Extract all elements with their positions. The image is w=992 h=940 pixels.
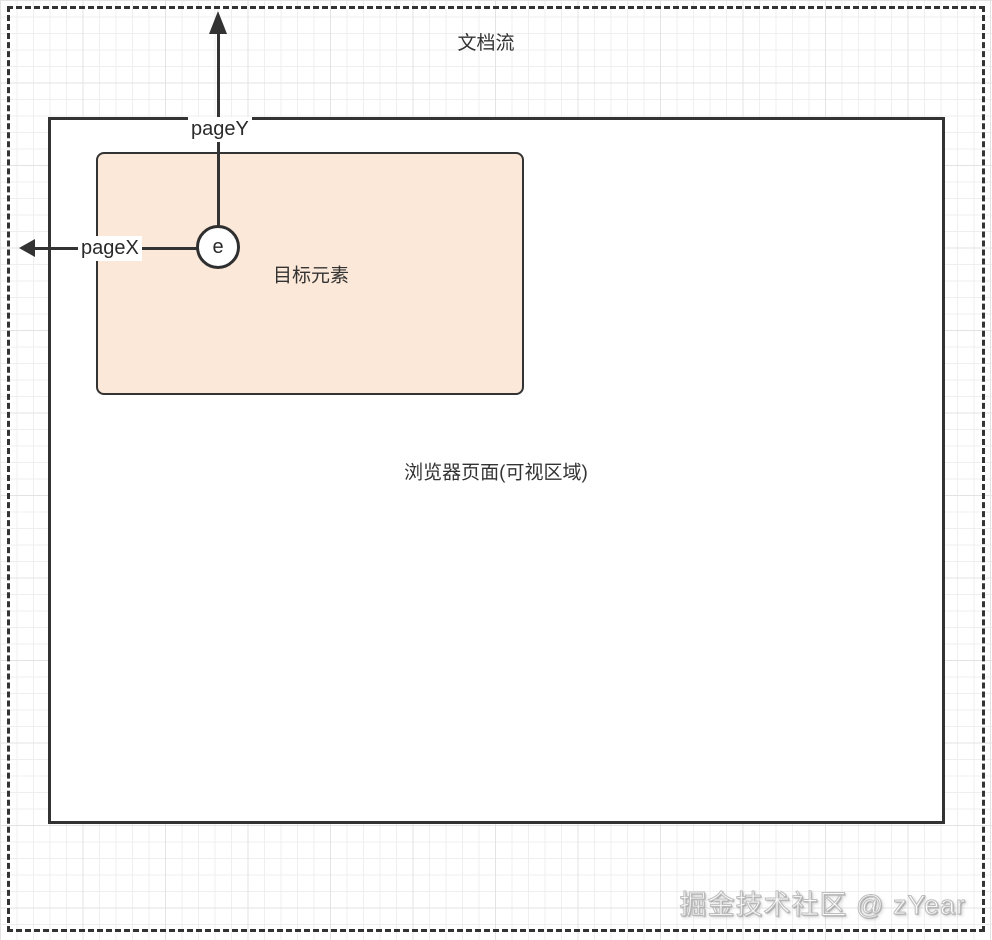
browser-viewport-label: 浏览器页面(可视区域) — [404, 458, 588, 485]
arrow-left-icon — [19, 239, 35, 257]
watermark: 掘金技术社区 @ zYear — [680, 883, 966, 922]
arrow-up-icon — [209, 11, 227, 34]
diagram-canvas: 文档流 浏览器页面(可视区域) 目标元素 pageY pageX e 掘金技术社… — [0, 0, 992, 940]
target-element-label: 目标元素 — [273, 261, 349, 288]
event-circle: e — [196, 225, 240, 269]
pagey-label: pageY — [188, 117, 252, 142]
document-flow-label: 文档流 — [457, 28, 514, 55]
pagex-label: pageX — [78, 236, 142, 261]
event-circle-label: e — [212, 236, 223, 259]
